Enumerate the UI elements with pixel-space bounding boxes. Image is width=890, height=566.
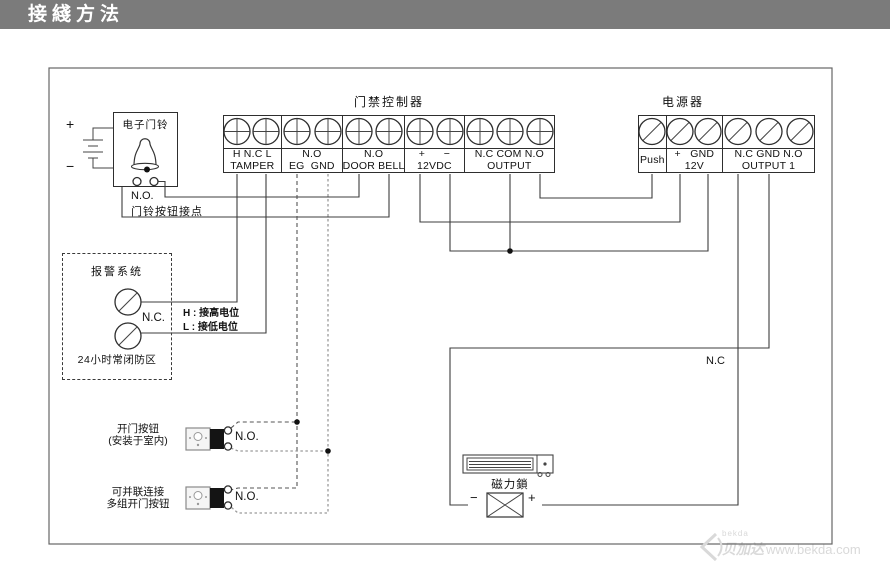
terminal-group-push: Push — [639, 116, 667, 172]
junction-dot — [507, 248, 513, 254]
maglock-device-icon — [463, 455, 553, 477]
terminal-label: + − — [419, 149, 450, 161]
terminal-group-doorbell: N.ODOOR BELL — [343, 116, 405, 172]
maglock-label: 磁力鎖 — [488, 476, 532, 492]
watermark-logo-text: bekda — [722, 529, 749, 538]
maglock-minus-label: − — [470, 490, 478, 505]
battery-minus-label: − — [66, 158, 74, 174]
screw-zone — [343, 116, 404, 149]
exit-button1-icon — [186, 427, 232, 450]
l-potential-note: L : 接低电位 — [183, 318, 238, 333]
doorbell-title: 电子门铃 — [114, 117, 177, 132]
junction-dot — [325, 448, 331, 454]
maglock-plus-label: + — [528, 490, 536, 505]
terminal-label: N.C COM N.O — [475, 149, 544, 161]
page-title: 接綫方法 — [0, 0, 124, 29]
button1-label-line1: 开门按钮 — [117, 423, 159, 435]
terminal-label: N.O — [364, 149, 383, 161]
watermark-name: 贝加达 — [722, 539, 764, 559]
controller-title: 门禁控制器 — [339, 93, 439, 110]
maglock-load-icon — [487, 493, 523, 517]
wire-button1-top — [231, 422, 297, 428]
screw-zone — [465, 116, 554, 149]
title-bar: 接綫方法 — [0, 0, 890, 29]
controller-terminal-strip: H N.C LTAMPER N.OEG GND N.ODOOR BELL + −… — [223, 115, 555, 173]
alarm-zone-label: 24小时常闭防区 — [64, 352, 170, 367]
screw-zone — [667, 116, 722, 149]
button2-no-label: N.O. — [235, 491, 259, 503]
button1-no-label: N.O. — [235, 431, 259, 443]
terminal-group-tamper: H N.C LTAMPER — [224, 116, 282, 172]
button1-label-line2: (安装于室内) — [108, 435, 168, 447]
h-potential-note: H : 接高电位 — [183, 304, 239, 319]
wire-doorbell-no — [158, 174, 359, 197]
button2-label-line1: 可并联连接 — [112, 486, 165, 498]
power-supply-title: 电源器 — [638, 93, 728, 110]
doorbell-box: 电子门铃 — [113, 112, 178, 187]
screw-zone — [639, 116, 666, 149]
wire-12vdc-minus — [450, 174, 708, 251]
button2-label-line2: 多组开门按钮 — [107, 498, 170, 510]
wire-psu-gnd-to-maglock — [450, 174, 769, 505]
junction-dot — [294, 419, 300, 425]
terminal-label: TAMPER — [230, 161, 274, 173]
terminal-label: H N.C L — [233, 149, 272, 161]
wire-psu-nc-to-maglock — [542, 174, 738, 505]
terminal-group-output1: N.C GND N.OOUTPUT 1 — [723, 116, 814, 172]
watermark-logo-icon — [702, 534, 722, 560]
wires — [122, 174, 769, 513]
screw-zone — [282, 116, 343, 149]
alarm-nc-label: N.C. — [142, 312, 165, 324]
screw-zone — [405, 116, 464, 149]
terminal-label: OUTPUT — [487, 161, 531, 173]
wiring-diagram-page: 接綫方法 门禁控制器 电源器 H N.C LTAMPER N.OEG GND N… — [0, 0, 890, 566]
doorbell-contact-label: 门铃按钮接点 — [131, 203, 203, 219]
terminal-group-12vdc: + −12VDC — [405, 116, 465, 172]
terminal-group-output: N.C COM N.OOUTPUT — [465, 116, 554, 172]
battery-plus-label: + — [66, 116, 74, 132]
exit-button2-icon — [186, 486, 232, 509]
button2-label: 可并联连接 多组开门按钮 — [98, 487, 178, 510]
screw-zone — [224, 116, 281, 149]
power-supply-terminal-strip: Push + GND12V N.C GND N.OOUTPUT 1 — [638, 115, 815, 173]
terminal-label: Push — [640, 155, 665, 167]
nc-wire-label: N.C — [706, 355, 725, 367]
terminal-label: 12VDC — [417, 161, 452, 173]
terminal-label: N.O — [302, 149, 321, 161]
terminal-label: DOOR BELL — [343, 161, 405, 173]
terminal-group-eg-gnd: N.OEG GND — [282, 116, 344, 172]
wire-output-no-to-push — [540, 174, 652, 198]
watermark-url: www.bekda.com — [766, 542, 861, 557]
terminal-label: N.C GND N.O — [734, 149, 802, 161]
doorbell-no-label: N.O. — [131, 190, 154, 202]
wire-button1-bottom — [231, 448, 328, 451]
alarm-title: 报警系统 — [63, 263, 171, 279]
wire-12vdc-plus — [420, 174, 680, 222]
terminal-label: EG GND — [289, 161, 335, 173]
terminal-label: + GND — [675, 149, 715, 161]
terminal-label: 12V — [685, 161, 704, 173]
terminal-group-12v: + GND12V — [667, 116, 723, 172]
battery-icon — [83, 128, 113, 168]
button1-label: 开门按钮 (安装于室内) — [98, 424, 178, 447]
wire-gnd-dotted — [231, 174, 328, 513]
screw-zone — [723, 116, 814, 149]
terminal-label: OUTPUT 1 — [742, 161, 795, 173]
